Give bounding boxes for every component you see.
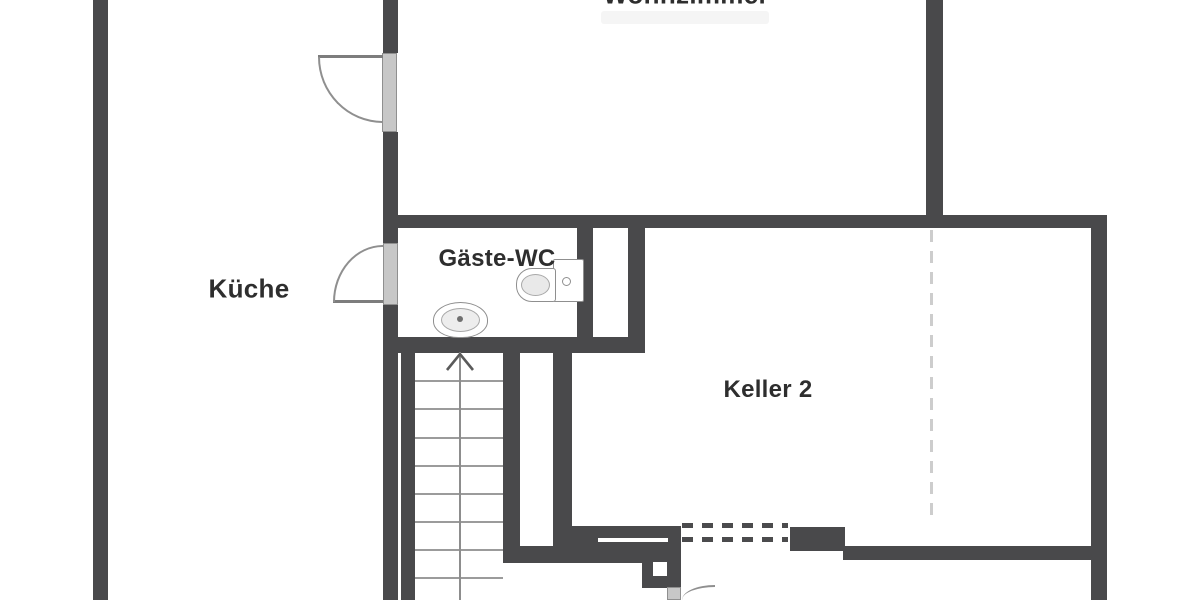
dashed-divider-keller xyxy=(930,230,933,518)
door-gaestewc-swing-arc xyxy=(333,245,383,302)
room-label-keller-2: Keller 2 xyxy=(723,376,812,404)
stair-direction-arrow-icon xyxy=(443,351,477,373)
dashed-opening-top-line xyxy=(682,523,788,528)
wall-keller-right xyxy=(1091,215,1107,600)
wall-wohnzimmer-right xyxy=(926,0,943,215)
dashed-opening-bottom-line xyxy=(682,537,788,542)
pillar-notch xyxy=(653,562,667,576)
wall-shaft-right xyxy=(628,228,645,353)
wall-outer-left xyxy=(93,0,108,600)
wall-keller-bottom-block xyxy=(790,527,845,551)
floor-plan: Wohnzimmer Küche Gäste-WC Keller 2 xyxy=(0,0,1200,600)
stairs xyxy=(415,352,503,600)
door-bottom-leaf xyxy=(667,587,681,600)
room-label-wohnzimmer: Wohnzimmer xyxy=(603,0,769,11)
door-bottom-swing-arc xyxy=(682,585,715,600)
room-label-gaeste-wc: Gäste-WC xyxy=(438,245,555,273)
wall-gaestewc-bottom xyxy=(383,337,645,353)
room-label-kueche: Küche xyxy=(209,274,290,305)
wall-stairs-right xyxy=(503,352,520,563)
toilet-seat xyxy=(521,274,550,296)
wall-corridor-right xyxy=(553,352,572,528)
door-wohnzimmer-swing-arc xyxy=(318,57,383,123)
toilet-flush-button xyxy=(562,277,571,286)
wall-mid-top xyxy=(383,0,398,53)
wall-slit xyxy=(598,538,668,542)
door-gaestewc-leaf xyxy=(383,243,398,305)
wall-stairs-left xyxy=(401,352,415,600)
wall-horizontal-main xyxy=(383,215,1107,228)
watermark xyxy=(601,11,769,24)
stair-center-line xyxy=(459,352,461,600)
wall-keller-bottom xyxy=(843,546,1091,560)
sink-drain xyxy=(457,316,463,322)
wall-corridor-step-top xyxy=(553,526,681,546)
door-wohnzimmer-leaf xyxy=(382,53,397,132)
